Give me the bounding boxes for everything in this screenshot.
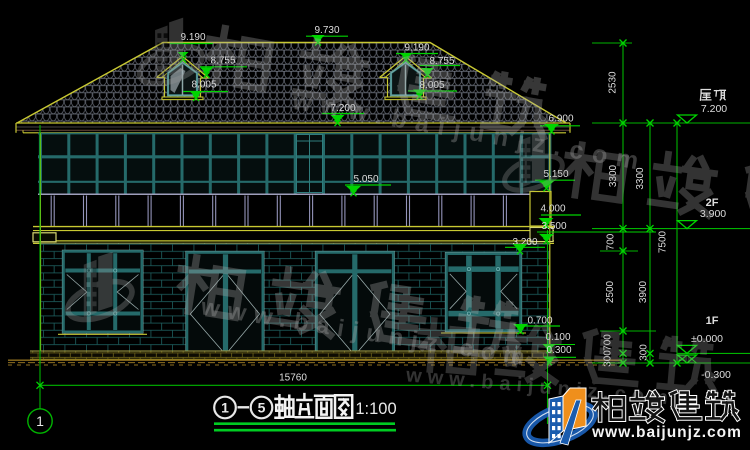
svg-text:5: 5 xyxy=(258,400,266,416)
svg-text:www.baijunjz.com: www.baijunjz.com xyxy=(591,424,742,441)
svg-text:1F: 1F xyxy=(706,315,719,327)
svg-text:1:100: 1:100 xyxy=(355,400,396,418)
svg-text:5.050: 5.050 xyxy=(353,174,378,185)
svg-text:2530: 2530 xyxy=(608,71,619,94)
svg-text:15760: 15760 xyxy=(279,373,307,384)
svg-text:7.200: 7.200 xyxy=(701,103,727,115)
svg-text:3900: 3900 xyxy=(638,280,649,303)
svg-text:9.190: 9.190 xyxy=(180,32,205,43)
svg-text:0.700: 0.700 xyxy=(527,316,552,327)
svg-text:1: 1 xyxy=(221,400,229,416)
svg-text:700: 700 xyxy=(606,233,617,250)
svg-text:300: 300 xyxy=(639,344,650,361)
svg-text:3.500: 3.500 xyxy=(541,221,566,232)
svg-text:7500: 7500 xyxy=(658,230,669,253)
svg-text:9.730: 9.730 xyxy=(314,25,339,36)
svg-text:2500: 2500 xyxy=(605,280,616,303)
svg-text:1: 1 xyxy=(36,413,44,429)
svg-text:4.000: 4.000 xyxy=(540,204,565,215)
svg-text:9.190: 9.190 xyxy=(404,43,429,54)
svg-text:6.900: 6.900 xyxy=(548,114,573,125)
